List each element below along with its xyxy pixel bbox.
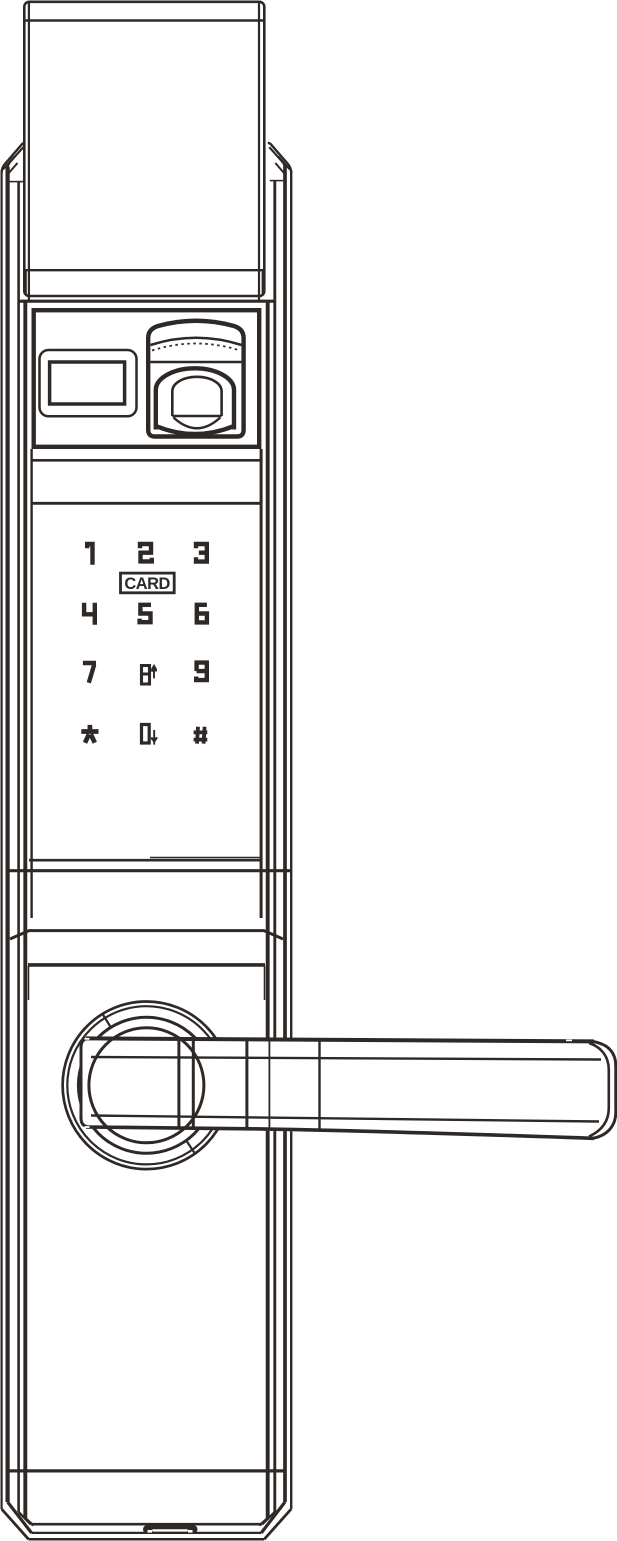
svg-text:CARD: CARD	[124, 575, 170, 593]
